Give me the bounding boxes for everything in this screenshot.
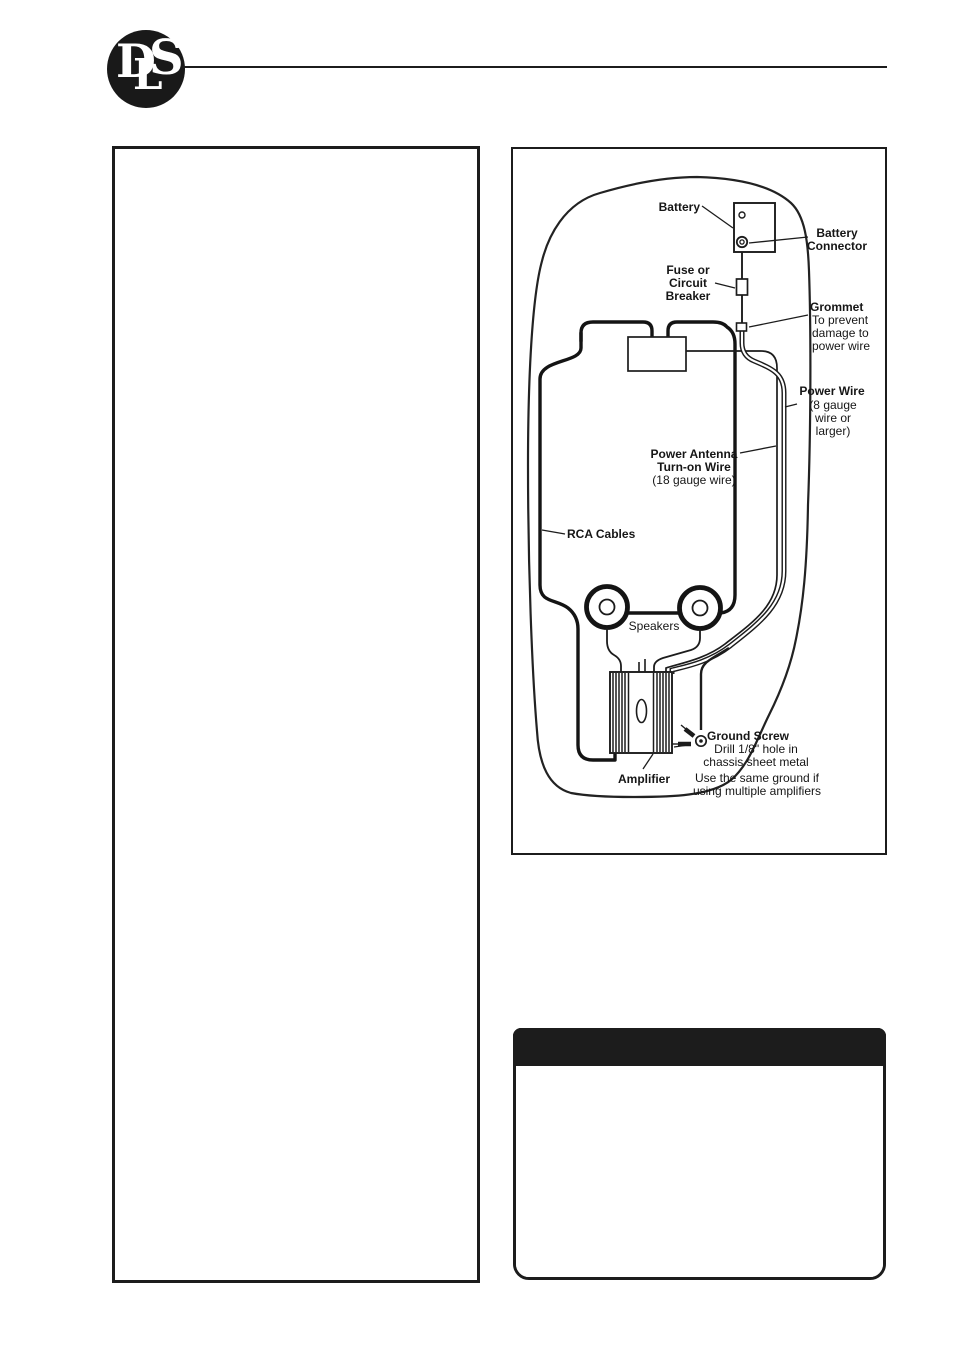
battery-vent-circle xyxy=(739,212,745,218)
amplifier xyxy=(610,672,672,753)
manual-page: D L S xyxy=(0,0,954,1350)
power-wire-pointer xyxy=(785,404,797,407)
power-wire-note: larger) xyxy=(815,424,850,438)
battery-label: Battery xyxy=(658,200,700,214)
grommet-label: Grommet xyxy=(810,300,863,314)
info-box-header xyxy=(513,1028,886,1066)
amplifier-logo-oval xyxy=(636,699,646,722)
info-box-body xyxy=(516,1067,883,1277)
power-wire-note: wire or xyxy=(813,411,850,425)
ground-screw-note: Drill 1/8" hole in xyxy=(714,742,798,756)
power-wire-label: Power Wire xyxy=(799,384,865,398)
ground-screw-note: chassis sheet metal xyxy=(703,755,808,769)
ground-screw-note2: Use the same ground if xyxy=(694,771,819,785)
antenna-label: Power Antenna xyxy=(650,447,737,461)
ground-screw-label: Ground Screw xyxy=(707,729,790,743)
speaker-left xyxy=(586,586,627,627)
grommet-note: power wire xyxy=(812,339,870,353)
grommet xyxy=(736,323,746,331)
amplifier-pointer xyxy=(643,754,653,769)
rca-label: RCA Cables xyxy=(567,527,636,541)
speakers-label: Speakers xyxy=(628,619,679,633)
logo-letter-s: S xyxy=(149,34,184,82)
power-wire-note: (8 gauge xyxy=(809,398,857,412)
antenna-note: (18 gauge wire) xyxy=(652,473,735,487)
battery-connector-label: Connector xyxy=(807,239,867,253)
dls-logo: D L S xyxy=(107,30,185,108)
fuse-pointer xyxy=(715,283,735,288)
fuse-or-breaker xyxy=(736,279,747,295)
grommet-pointer xyxy=(749,315,808,327)
antenna-pointer xyxy=(740,446,776,453)
header-rule xyxy=(183,66,887,68)
antenna-label: Turn-on Wire xyxy=(657,460,731,474)
left-content-panel xyxy=(112,146,480,1283)
fuse-label: Circuit xyxy=(668,276,706,290)
amplifier-label: Amplifier xyxy=(617,772,669,786)
battery-pointer xyxy=(702,206,733,228)
wiring-diagram-box: Battery Battery Connector Fuse or Circui… xyxy=(511,147,887,855)
speaker-right xyxy=(679,587,720,628)
head-unit xyxy=(628,337,686,371)
ground-screw-note2: using multiple amplifiers xyxy=(692,784,820,798)
grommet-note: damage to xyxy=(812,326,869,340)
fuse-label: Fuse or xyxy=(666,263,710,277)
antenna-turn-on-wire xyxy=(666,351,777,674)
rca-cable-run xyxy=(540,333,615,760)
battery xyxy=(734,203,775,252)
fuse-label: Breaker xyxy=(665,289,710,303)
wiring-diagram-svg: Battery Battery Connector Fuse or Circui… xyxy=(511,147,887,855)
grommet-note: To prevent xyxy=(812,313,869,327)
info-box xyxy=(513,1028,886,1280)
battery-connector-label: Battery xyxy=(816,226,858,240)
rca-pointer xyxy=(542,530,565,534)
